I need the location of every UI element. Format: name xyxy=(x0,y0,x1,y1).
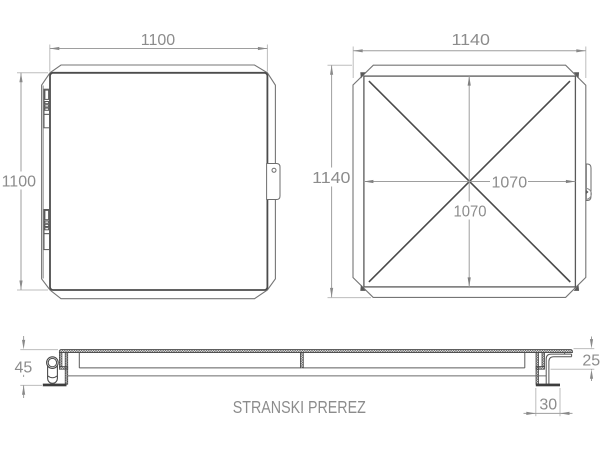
svg-text:45: 45 xyxy=(15,360,33,377)
svg-text:1140: 1140 xyxy=(312,170,351,187)
svg-text:STRANSKI PREREZ: STRANSKI PREREZ xyxy=(233,397,366,417)
svg-text:1100: 1100 xyxy=(2,173,37,190)
svg-text:1100: 1100 xyxy=(141,32,176,49)
svg-text:30: 30 xyxy=(539,397,557,414)
svg-text:1070: 1070 xyxy=(454,203,487,220)
svg-text:25: 25 xyxy=(582,352,600,369)
svg-text:1140: 1140 xyxy=(452,32,491,49)
svg-text:1070: 1070 xyxy=(492,174,528,191)
